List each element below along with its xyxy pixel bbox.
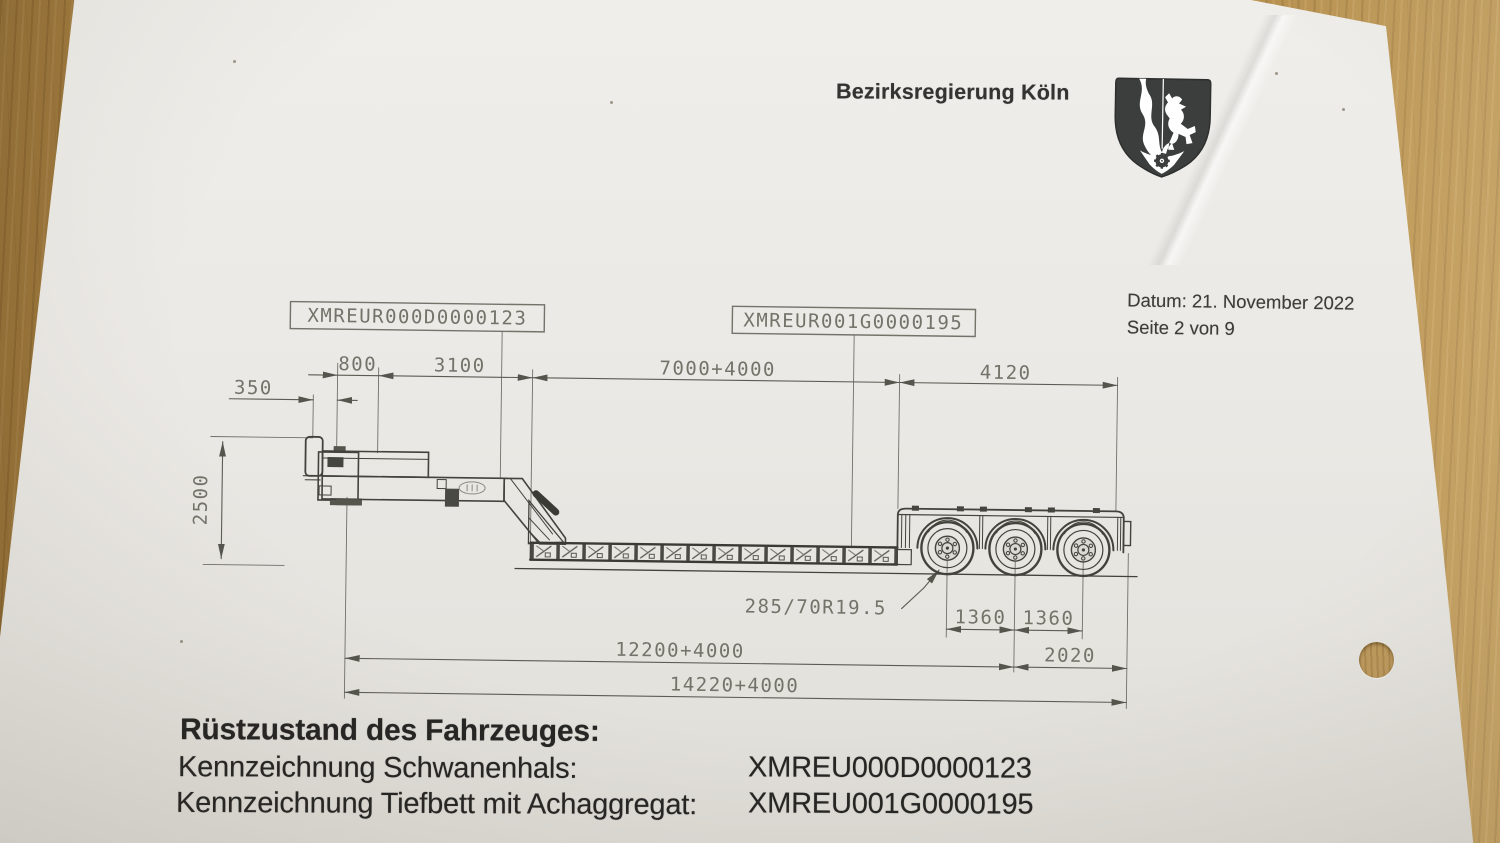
footer-row2-label: Kennzeichnung Tiefbett mit Achaggregat:	[176, 787, 697, 822]
footer-row1-value: XMREU000D0000123	[748, 751, 1032, 785]
ground-line	[515, 568, 1137, 576]
vin-box-lowbed-label: XMREUR001G0000195	[743, 309, 963, 334]
lowbed-deck	[530, 543, 897, 565]
dim-kingpin: 800	[338, 353, 377, 376]
dim-total-length: 14220+4000	[670, 674, 800, 698]
gooseneck-front-upright	[305, 437, 323, 476]
footer-row2-value: XMREU001G0000195	[748, 787, 1034, 821]
dim-front-overhang: 350	[234, 377, 273, 400]
dim-tire-size: 285/70R19.5	[744, 596, 887, 620]
leader-gooseneck	[500, 331, 502, 478]
dim-kingpin-to-axles: 12200+4000	[615, 639, 745, 663]
vin-box-gooseneck: XMREUR000D0000123	[290, 302, 544, 332]
kingpin-plate	[336, 499, 360, 505]
vin-box-gooseneck-label: XMREUR000D0000123	[307, 305, 527, 330]
dim-bed-length: 7000+4000	[659, 357, 776, 381]
dim-axle-gap-2: 1360	[1022, 607, 1074, 630]
dim-rear-length: 4120	[980, 362, 1032, 385]
leader-lowbed	[851, 335, 854, 547]
dim-neck-length: 3100	[434, 354, 486, 377]
dim-axle-gap-1: 1360	[954, 606, 1006, 629]
manufacturer-logo-mark	[459, 482, 485, 494]
dim-rear-overhang: 2020	[1044, 644, 1096, 667]
footer-title: Rüstzustand des Fahrzeuges:	[180, 713, 600, 749]
vin-box-lowbed: XMREUR001G0000195	[732, 306, 975, 336]
punch-hole	[1359, 642, 1394, 678]
neck-hinge	[536, 494, 556, 512]
footer-row1-label: Kennzeichnung Schwanenhals:	[178, 751, 577, 786]
dim-height: 2500	[190, 473, 213, 525]
trailer-side-view	[302, 437, 1139, 577]
